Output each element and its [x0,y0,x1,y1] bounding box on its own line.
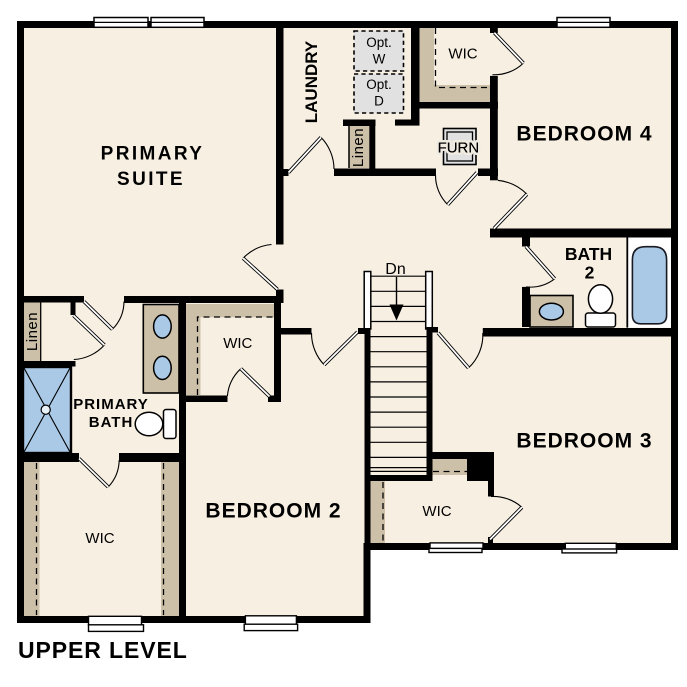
svg-text:BEDROOM 3: BEDROOM 3 [516,430,652,453]
svg-text:WIC: WIC [448,45,477,62]
svg-text:WIC: WIC [85,530,114,547]
svg-text:WIC: WIC [422,503,451,520]
svg-text:BEDROOM 2: BEDROOM 2 [205,500,341,523]
svg-text:WIC: WIC [223,335,252,352]
svg-text:UPPER LEVEL: UPPER LEVEL [18,637,188,663]
svg-text:LAUNDRY: LAUNDRY [302,40,321,123]
svg-text:BATH: BATH [565,244,612,264]
svg-text:BATH: BATH [89,414,134,431]
svg-text:BEDROOM 4: BEDROOM 4 [516,123,652,146]
svg-text:2: 2 [585,262,595,282]
svg-text:SUITE: SUITE [117,169,185,190]
svg-text:Opt.: Opt. [366,77,392,92]
svg-text:W: W [373,52,386,67]
svg-text:Dn: Dn [385,261,405,278]
svg-text:FURN: FURN [438,140,480,157]
svg-text:Opt.: Opt. [366,35,392,50]
svg-text:Linen: Linen [24,312,41,351]
svg-text:PRIMARY: PRIMARY [101,144,205,165]
svg-text:D: D [374,94,384,109]
svg-text:Linen: Linen [350,128,367,167]
svg-text:PRIMARY: PRIMARY [73,396,149,413]
